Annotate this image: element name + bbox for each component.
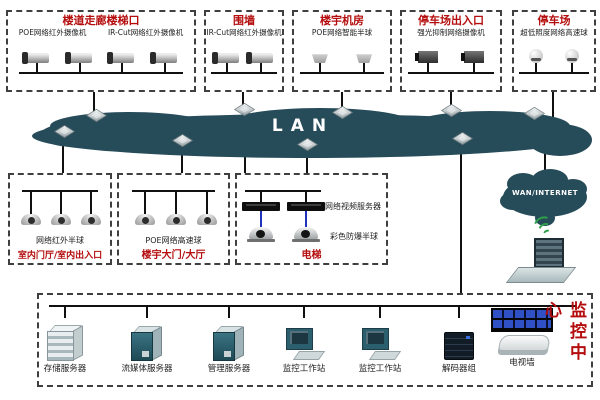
- storage-server-icon: [47, 324, 83, 360]
- bullet-camera-icon: [25, 53, 49, 72]
- speed-dome-camera-icon: [529, 49, 543, 72]
- bullet-camera-icon: [153, 53, 177, 72]
- camera-label: 超低照度网络高速球: [520, 27, 588, 38]
- camera-label: 网络红外半球: [10, 235, 110, 246]
- group-title: 停车场出入口: [418, 14, 484, 27]
- workstation-icon: [360, 328, 400, 360]
- dome-camera-icon: [81, 214, 101, 225]
- camera-row: [15, 38, 186, 72]
- camera-label: POE网络高速球: [119, 235, 228, 246]
- group-title: 围墙: [233, 14, 255, 27]
- camera-label: 彩色防爆半球: [330, 231, 378, 242]
- bus-line: [211, 72, 278, 74]
- connector-line: [90, 190, 92, 215]
- group-title: 电梯: [237, 246, 386, 261]
- group-perimeter-wall: 围墙 IR-Cut网络红外摄像机: [204, 10, 284, 92]
- device-streaming-server: 流媒体服务器: [102, 305, 192, 374]
- device-label: 解码器组: [442, 362, 476, 374]
- wan-label: WAN/INTERNET: [497, 189, 593, 197]
- server-label: 网络视频服务器: [325, 201, 381, 212]
- connector-line: [64, 305, 66, 318]
- laptop-icon: [508, 238, 586, 292]
- camera-label: 强光抑制网络摄像机: [417, 27, 485, 38]
- decoder-icon: [444, 332, 474, 360]
- camera-labels: 强光抑制网络摄像机: [402, 27, 500, 38]
- bus-line: [245, 190, 321, 192]
- group-parking-entrance: 停车场出入口 强光抑制网络摄像机: [400, 10, 502, 92]
- bus-line: [19, 72, 183, 74]
- connector-line: [305, 190, 307, 202]
- lan-label: LAN: [258, 116, 348, 136]
- device-label: 存储服务器: [44, 362, 87, 374]
- connector-line: [228, 305, 230, 318]
- box-camera-icon: [418, 51, 438, 72]
- bus-line: [408, 72, 494, 74]
- group-corridor-stairs: 楼道走廊楼梯口 POE网络红外摄像机 IR-Cut网络红外摄像机: [6, 10, 196, 92]
- bullet-camera-icon: [68, 53, 92, 72]
- group-title: 楼宇机房: [320, 14, 364, 27]
- group-title: 室内门厅/室内出入口: [10, 248, 110, 261]
- smart-dome-camera-icon: [312, 46, 328, 72]
- connector-line: [144, 190, 146, 215]
- connector-line: [206, 190, 208, 215]
- camera-labels: POE网络智能半球: [294, 27, 390, 38]
- connector-line: [175, 190, 177, 215]
- camera-labels: POE网络红外摄像机 IR-Cut网络红外摄像机: [8, 27, 194, 38]
- connector-line: [60, 190, 62, 215]
- dome-camera-icon: [166, 214, 186, 225]
- connector-line: [303, 305, 305, 318]
- dome-camera-icon: [21, 214, 41, 225]
- workstation-icon: [284, 328, 324, 360]
- monitor-center-box: 存储服务器 流媒体服务器 管理服务器 监控工作站 监控工作站: [37, 293, 593, 387]
- video-link-line: [260, 211, 262, 228]
- camera-label: IR-Cut网络红外摄像机: [108, 27, 183, 38]
- device-workstation-2: 监控工作站: [335, 305, 425, 374]
- camera-labels: IR-Cut网络红外摄像机: [206, 27, 282, 38]
- vandal-dome-camera-icon: [249, 227, 273, 239]
- bullet-camera-icon: [110, 53, 134, 72]
- connector-line: [30, 190, 32, 215]
- group-building-lobby: POE网络高速球 楼宇大门/大厅: [117, 173, 230, 265]
- camera-row: [209, 38, 279, 72]
- group-parking-lot: 停车场 超低照度网络高速球: [512, 10, 596, 92]
- video-link-line: [305, 211, 307, 228]
- dome-camera-icon: [197, 214, 217, 225]
- connector-line: [146, 305, 148, 318]
- monitor-center-title: 监控中心: [539, 301, 589, 383]
- dome-camera-icon: [51, 214, 71, 225]
- dome-camera-icon: [135, 214, 155, 225]
- device-label: 流媒体服务器: [121, 362, 172, 374]
- camera-label: IR-Cut网络红外摄像机: [206, 27, 281, 38]
- bus-line: [519, 72, 589, 74]
- connector-line: [260, 190, 262, 202]
- group-elevator: 网络视频服务器 彩色防爆半球 电梯: [235, 173, 388, 265]
- camera-row: [517, 38, 591, 72]
- smart-dome-camera-icon: [356, 46, 372, 72]
- group-indoor-entrance: 网络红外半球 室内门厅/室内出入口: [8, 173, 112, 265]
- tower-server-icon: [131, 326, 163, 360]
- group-title: 楼宇大门/大厅: [119, 246, 228, 261]
- tower-server-icon: [213, 326, 245, 360]
- group-title: 楼道走廊楼梯口: [63, 14, 140, 27]
- bullet-camera-icon: [215, 53, 239, 72]
- camera-labels: 超低照度网络高速球: [514, 27, 594, 38]
- video-server-icon: [287, 202, 325, 211]
- vandal-dome-camera-icon: [294, 227, 318, 239]
- camera-row: [298, 38, 386, 72]
- speed-dome-camera-icon: [565, 49, 579, 72]
- camera-label: POE网络红外摄像机: [19, 27, 87, 38]
- camera-row: [406, 38, 496, 72]
- device-label: 管理服务器: [208, 362, 251, 374]
- connector-line: [379, 305, 381, 318]
- network-topology-diagram: LAN WAN/INTERNET 楼道走廊楼梯口 POE网络红外摄像机 IR-C…: [0, 0, 600, 400]
- video-server-icon: [242, 202, 280, 211]
- group-title: 停车场: [538, 14, 571, 27]
- bullet-camera-icon: [249, 53, 273, 72]
- connector-line: [458, 305, 460, 318]
- device-storage-server: 存储服务器: [20, 305, 110, 374]
- device-label: 监控工作站: [283, 362, 326, 374]
- bus-line: [300, 72, 384, 74]
- device-label: 电视墙: [509, 356, 535, 368]
- group-equipment-room: 楼宇机房 POE网络智能半球: [292, 10, 392, 92]
- device-label: 监控工作站: [359, 362, 402, 374]
- camera-label: POE网络智能半球: [312, 27, 372, 38]
- box-camera-icon: [464, 51, 484, 72]
